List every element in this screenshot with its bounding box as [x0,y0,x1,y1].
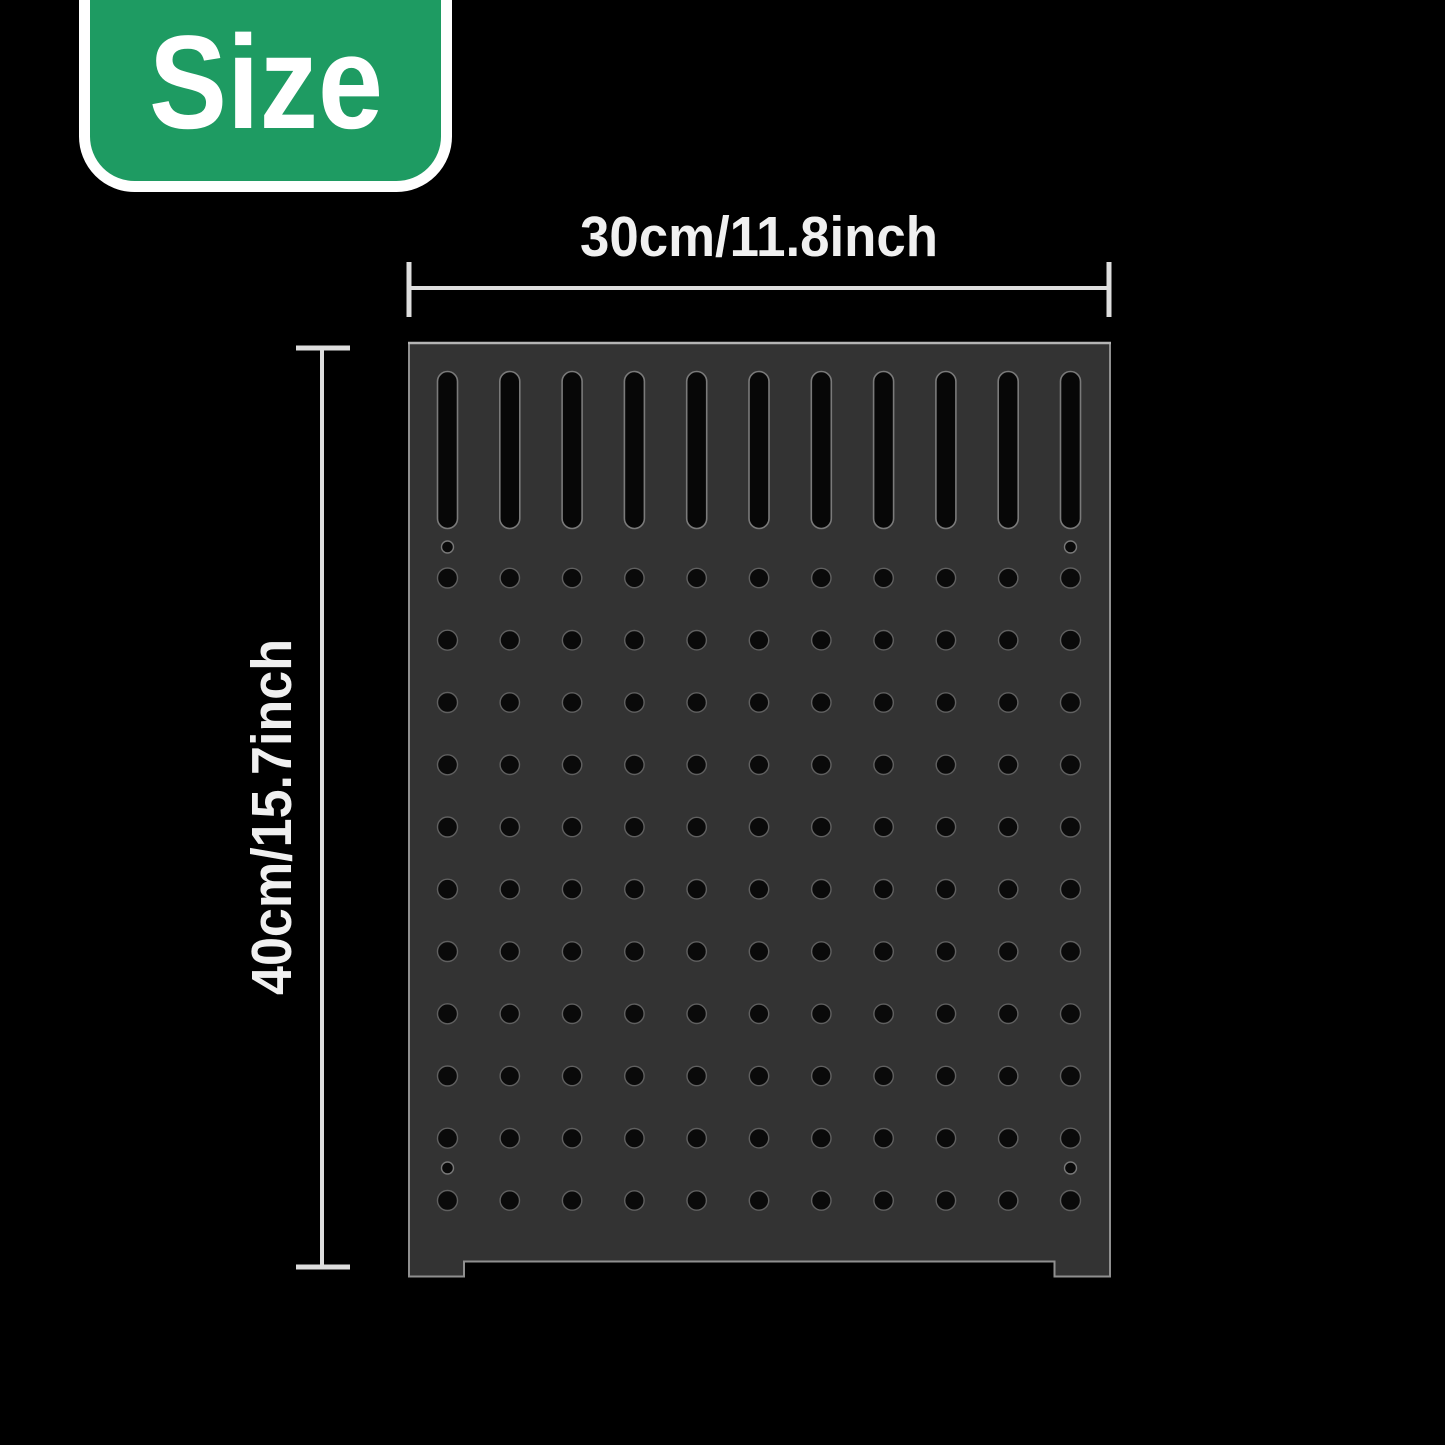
svg-text:30cm/11.8inch: 30cm/11.8inch [580,205,938,269]
svg-text:Size: Size [149,9,383,157]
svg-text:40cm/15.7inch: 40cm/15.7inch [240,639,304,995]
